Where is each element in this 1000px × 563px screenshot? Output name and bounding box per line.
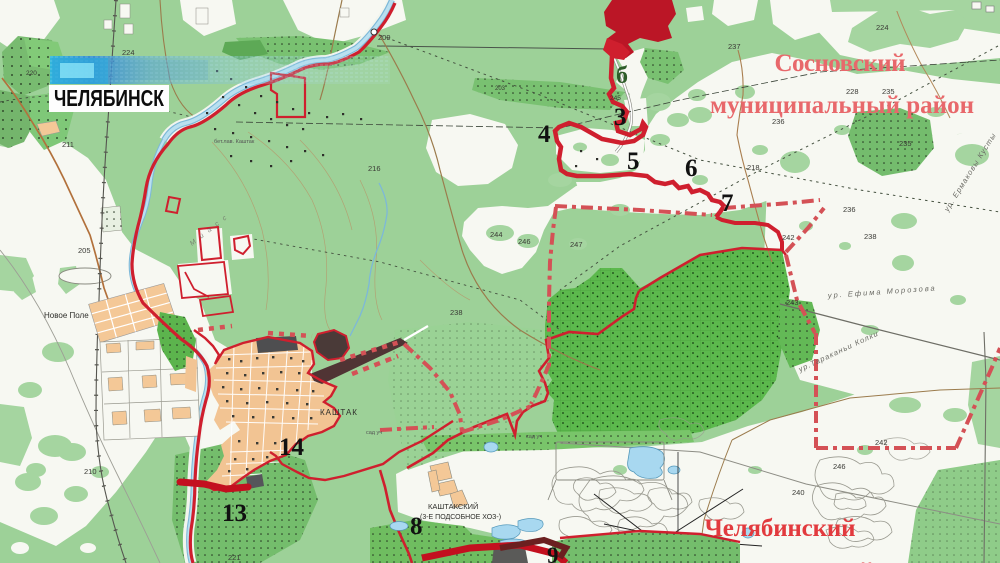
- svg-text:3: 3: [614, 104, 627, 131]
- svg-text:235: 235: [899, 139, 912, 148]
- svg-text:244: 244: [490, 230, 503, 239]
- svg-text:203: 203: [495, 86, 506, 92]
- svg-text:Сосновский: Сосновский: [775, 50, 906, 77]
- svg-text:218: 218: [747, 163, 760, 172]
- svg-text:224: 224: [122, 48, 135, 57]
- svg-text:Новое Поле: Новое Поле: [44, 311, 89, 320]
- svg-text:242: 242: [782, 233, 795, 242]
- svg-text:сад уч: сад уч: [526, 434, 542, 440]
- svg-text:9: 9: [547, 543, 559, 563]
- svg-text:211: 211: [62, 140, 74, 149]
- svg-text:4: 4: [538, 121, 551, 148]
- svg-text:муниципальный район: муниципальный район: [710, 92, 974, 119]
- svg-text:221: 221: [228, 553, 241, 562]
- svg-text:Городской: Городской: [757, 559, 874, 563]
- svg-text:5: 5: [627, 148, 640, 175]
- svg-text:224: 224: [876, 23, 889, 32]
- svg-text:216: 216: [368, 164, 381, 173]
- svg-text:б: б: [616, 63, 628, 89]
- svg-text:246: 246: [518, 237, 531, 246]
- svg-text:(3-Е ПОДСОБНОЕ ХОЗ-): (3-Е ПОДСОБНОЕ ХОЗ-): [420, 514, 501, 521]
- svg-text:246: 246: [833, 462, 846, 471]
- svg-text:238: 238: [450, 308, 463, 317]
- svg-text:240: 240: [792, 488, 805, 497]
- svg-text:236: 236: [843, 205, 856, 214]
- svg-text:сад уч: сад уч: [366, 430, 382, 436]
- svg-text:13: 13: [222, 500, 247, 527]
- svg-text:209: 209: [378, 33, 391, 42]
- svg-text:бет.лав. Каштак: бет.лав. Каштак: [214, 139, 255, 145]
- svg-text:8: 8: [410, 513, 423, 540]
- svg-text:238: 238: [864, 232, 877, 241]
- svg-text:205: 205: [78, 246, 91, 255]
- svg-text:КАШТАК: КАШТАК: [320, 408, 358, 417]
- svg-text:14: 14: [279, 434, 305, 461]
- svg-text:247: 247: [570, 240, 583, 249]
- svg-text:ЧЕЛЯБИНСК: ЧЕЛЯБИНСК: [54, 85, 165, 111]
- svg-text:242: 242: [875, 438, 888, 447]
- svg-text:245: 245: [610, 95, 621, 102]
- svg-text:243: 243: [786, 298, 799, 307]
- svg-text:Челябинский: Челябинский: [705, 515, 856, 542]
- svg-text:6: 6: [685, 155, 698, 182]
- svg-text:237: 237: [728, 42, 741, 51]
- svg-text:7: 7: [721, 190, 734, 217]
- svg-text:220: 220: [26, 70, 37, 77]
- svg-text:210: 210: [84, 467, 97, 476]
- svg-text:КАШТАКСКИЙ: КАШТАКСКИЙ: [428, 502, 478, 511]
